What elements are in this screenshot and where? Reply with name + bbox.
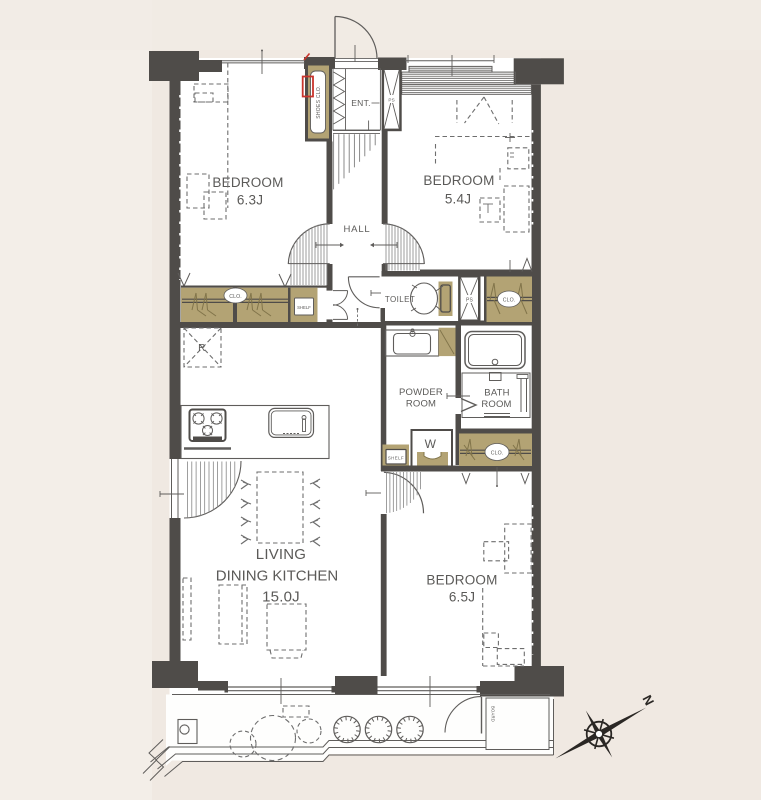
svg-text:SHELF: SHELF [297, 305, 311, 310]
svg-text:POWDER: POWDER [399, 387, 443, 398]
svg-text:ENT.: ENT. [351, 98, 371, 108]
svg-text:HALL: HALL [344, 224, 371, 235]
svg-text:BOARD: BOARD [491, 706, 496, 722]
svg-text:6.5J: 6.5J [449, 590, 475, 605]
svg-text:PS: PS [388, 98, 395, 103]
svg-text:CLO.: CLO. [229, 294, 242, 300]
svg-text:BEDROOM: BEDROOM [426, 573, 497, 588]
svg-text:ROOM: ROOM [406, 399, 436, 410]
svg-text:W: W [425, 437, 437, 451]
svg-text:PS: PS [466, 298, 474, 304]
svg-text:6.3J: 6.3J [237, 193, 263, 208]
svg-text:BEDROOM: BEDROOM [212, 175, 283, 190]
svg-text:5.4J: 5.4J [445, 192, 471, 207]
svg-text:BATH: BATH [484, 388, 509, 399]
svg-text:15.0J: 15.0J [262, 589, 300, 606]
svg-text:SHOES CLO.: SHOES CLO. [316, 85, 322, 119]
svg-text:LIVING: LIVING [256, 546, 306, 563]
svg-text:SHELF: SHELF [388, 456, 404, 461]
svg-text:CLO.: CLO. [491, 451, 504, 457]
svg-text:DINING KITCHEN: DINING KITCHEN [216, 568, 339, 585]
svg-text:ROOM: ROOM [481, 399, 511, 410]
svg-text:R: R [198, 343, 206, 354]
svg-text:BEDROOM: BEDROOM [423, 173, 494, 188]
svg-text:CLO.: CLO. [503, 297, 516, 303]
